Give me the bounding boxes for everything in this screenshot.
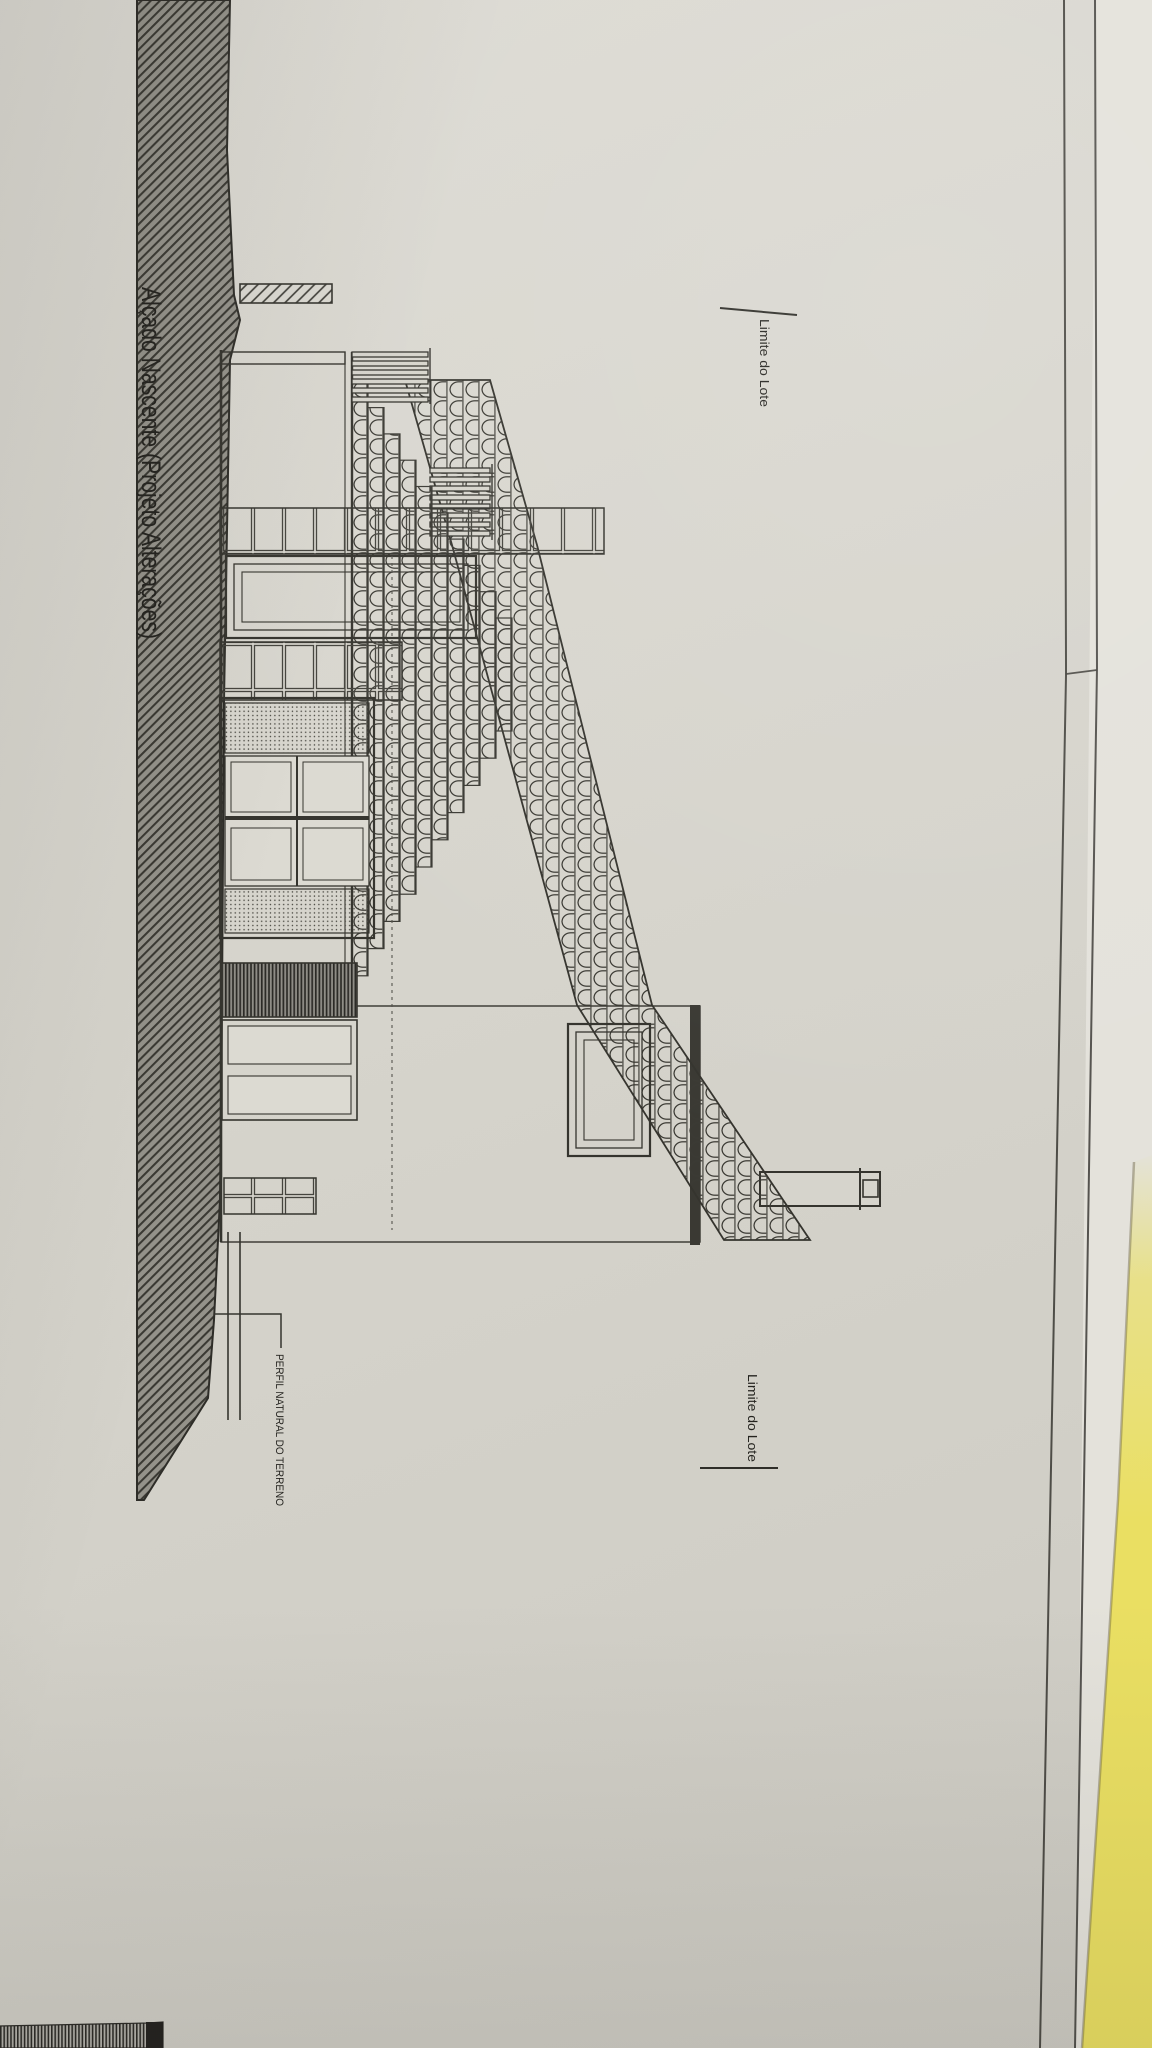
photo-surroundings [0, 0, 1152, 2048]
neighbour-drawing-corner [0, 2022, 163, 2048]
sheet-border-line [1040, 0, 1066, 2048]
photo-of-architectural-drawing: Alçado Nascente (Projeto Alterações) Lim… [0, 0, 1152, 2048]
